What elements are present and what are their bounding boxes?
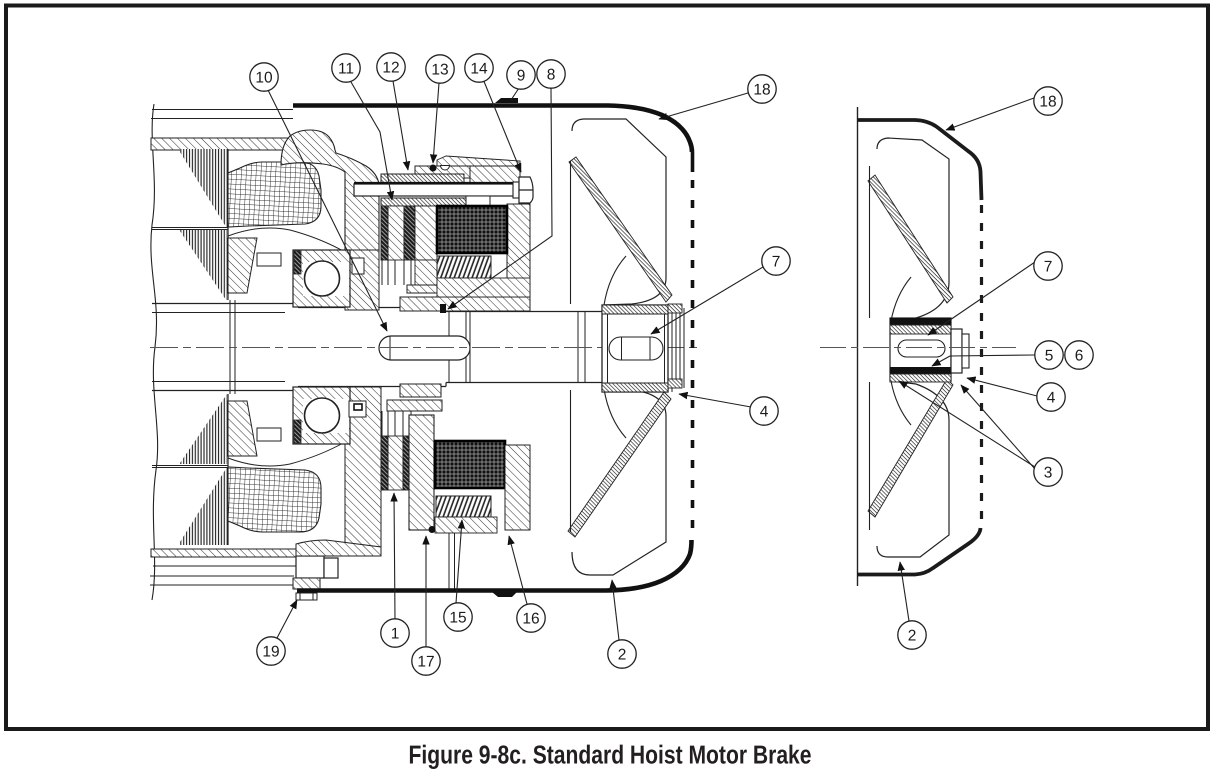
svg-text:10: 10 xyxy=(255,70,273,87)
svg-text:4: 4 xyxy=(760,404,769,421)
svg-text:18: 18 xyxy=(1039,94,1056,111)
svg-text:1: 1 xyxy=(391,626,400,643)
svg-text:8: 8 xyxy=(547,67,556,84)
svg-text:2: 2 xyxy=(908,628,917,645)
svg-text:6: 6 xyxy=(1075,348,1084,365)
svg-text:3: 3 xyxy=(1044,465,1053,482)
svg-text:2: 2 xyxy=(618,647,627,664)
svg-text:11: 11 xyxy=(338,61,354,78)
svg-text:12: 12 xyxy=(382,60,399,77)
svg-text:13: 13 xyxy=(431,62,448,79)
svg-text:19: 19 xyxy=(262,644,279,661)
svg-text:7: 7 xyxy=(1044,259,1053,276)
svg-text:4: 4 xyxy=(1047,390,1056,407)
svg-text:17: 17 xyxy=(417,654,434,671)
svg-text:18: 18 xyxy=(753,82,770,99)
svg-text:14: 14 xyxy=(470,61,488,78)
svg-text:15: 15 xyxy=(449,610,466,627)
svg-text:5: 5 xyxy=(1045,348,1054,365)
svg-text:16: 16 xyxy=(522,611,539,628)
svg-text:7: 7 xyxy=(772,254,781,271)
svg-text:9: 9 xyxy=(517,68,526,85)
svg-text:Figure 9-8c. Standard Hoist Mo: Figure 9-8c. Standard Hoist Motor Brake xyxy=(409,740,812,770)
